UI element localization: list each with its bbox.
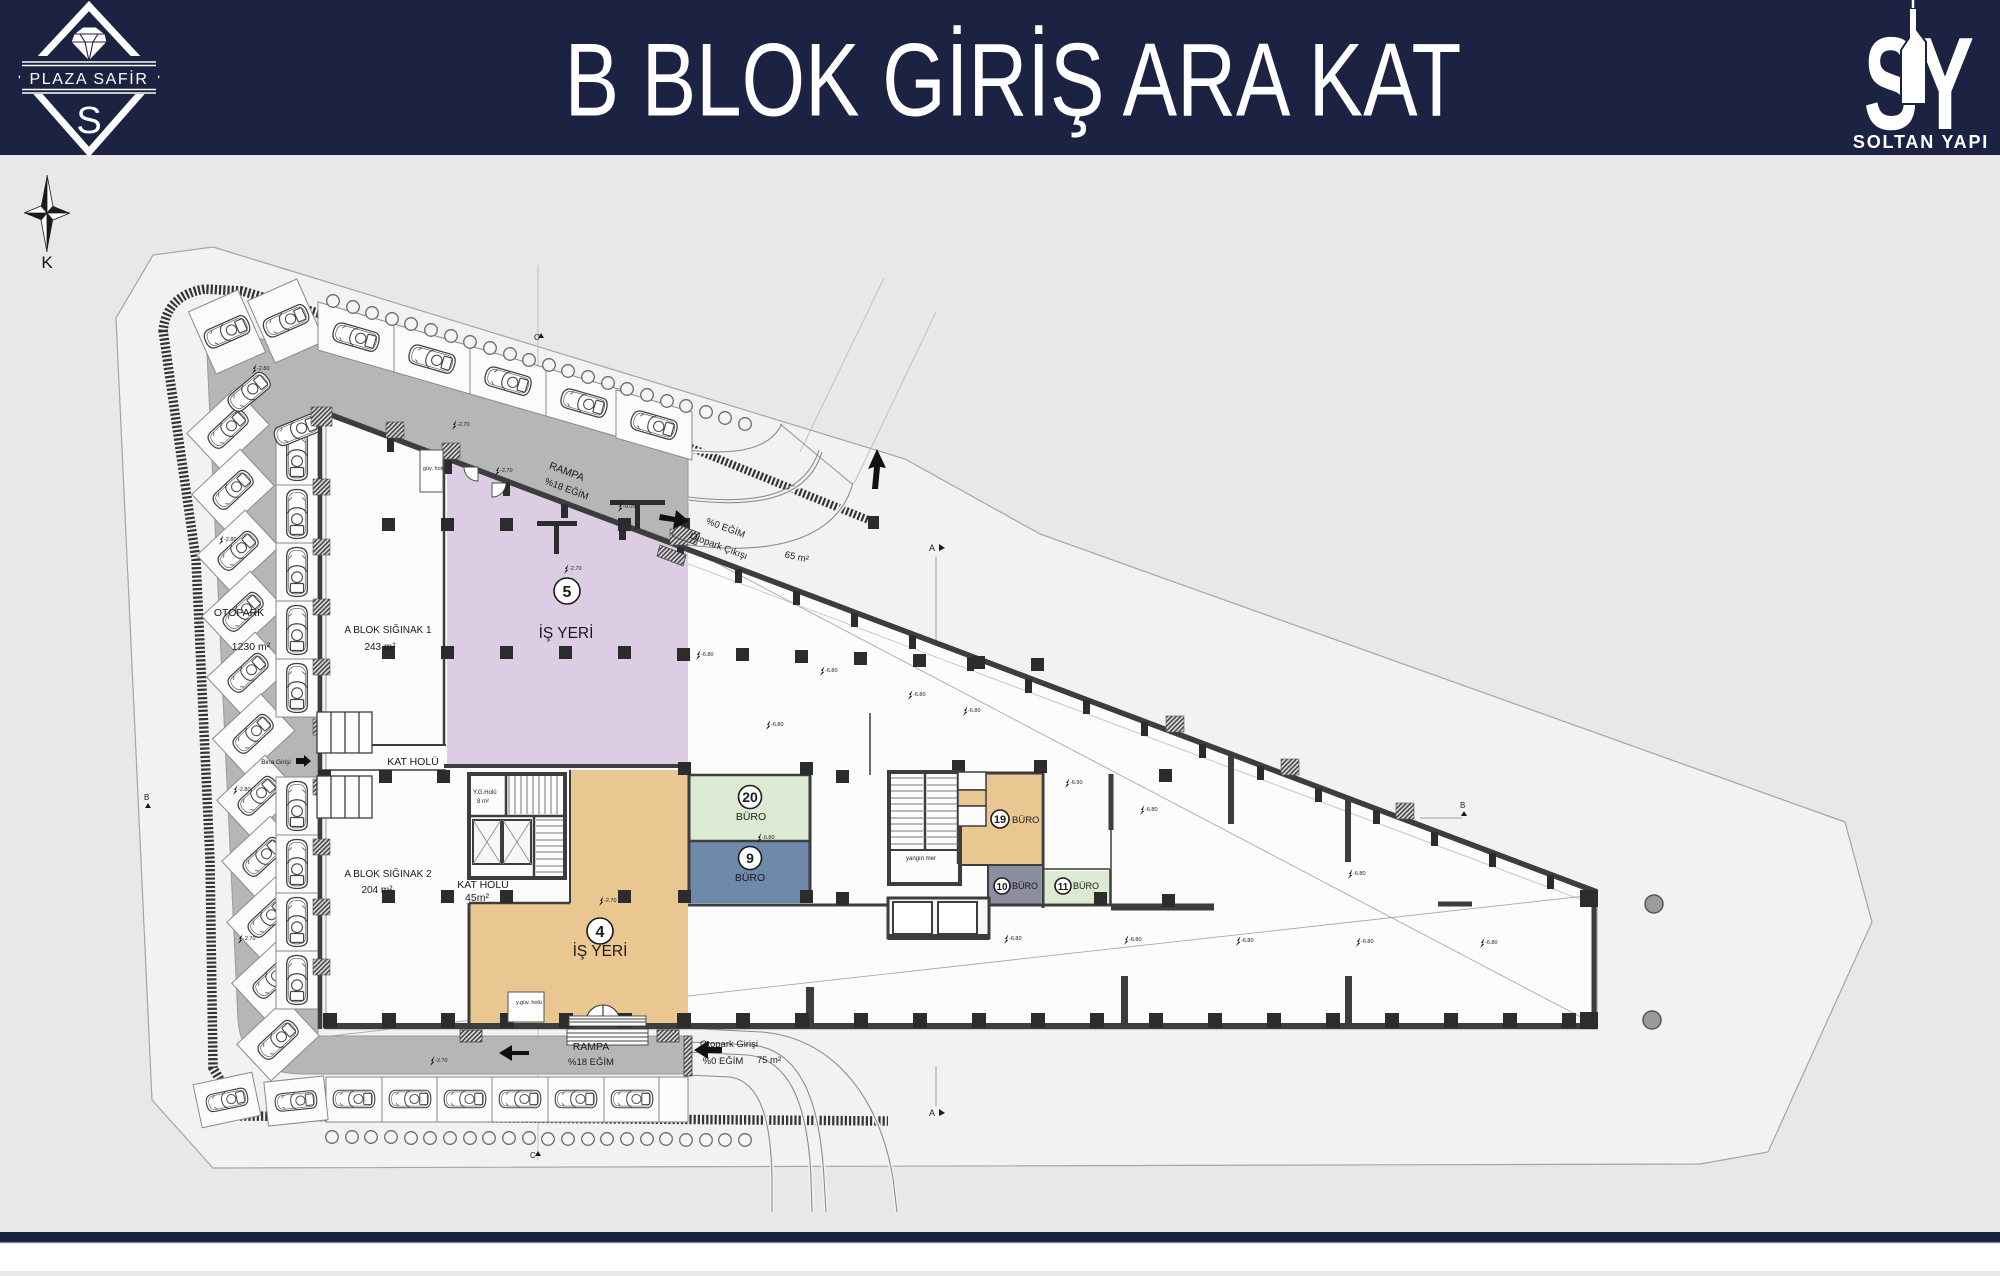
svg-text:BÜRO: BÜRO xyxy=(1012,815,1039,826)
svg-text:-6.80: -6.80 xyxy=(1145,807,1158,813)
svg-text:9: 9 xyxy=(746,850,754,866)
svg-text:75 m²: 75 m² xyxy=(757,1055,781,1066)
svg-text:4: 4 xyxy=(596,924,605,941)
svg-text:-2.70: -2.70 xyxy=(604,898,617,904)
svg-text:C: C xyxy=(530,1151,536,1160)
svg-text:-6.80: -6.80 xyxy=(1361,939,1374,945)
svg-text:A BLOK SIĞINAK 2: A BLOK SIĞINAK 2 xyxy=(344,867,432,880)
svg-text:%0 EĞİM: %0 EĞİM xyxy=(703,1056,744,1067)
svg-text:-6.80: -6.80 xyxy=(762,835,775,841)
svg-text:Bina Girişi: Bina Girişi xyxy=(261,759,291,766)
svg-text:A: A xyxy=(929,543,935,553)
svg-text:-6.80: -6.80 xyxy=(1241,938,1254,944)
svg-text:-6.80: -6.80 xyxy=(968,708,981,714)
svg-text:A: A xyxy=(929,1108,935,1118)
svg-text:-2.70: -2.70 xyxy=(569,566,582,572)
svg-text:BÜRO: BÜRO xyxy=(735,872,765,884)
svg-text:45m²: 45m² xyxy=(465,892,489,904)
svg-text:-0.05: -0.05 xyxy=(623,504,636,510)
svg-text:8 m²: 8 m² xyxy=(477,799,489,805)
svg-text:-6.80: -6.80 xyxy=(1485,940,1498,946)
svg-text:İŞ YERİ: İŞ YERİ xyxy=(539,624,594,642)
svg-text:y.güv. holü: y.güv. holü xyxy=(516,1000,542,1006)
svg-text:5: 5 xyxy=(563,584,572,601)
svg-text:-2.70: -2.70 xyxy=(457,422,470,428)
svg-text:OTOPARK: OTOPARK xyxy=(214,607,264,619)
svg-text:K: K xyxy=(41,253,53,272)
svg-text:20: 20 xyxy=(742,789,758,805)
svg-text:Y.G.Holü: Y.G.Holü xyxy=(473,790,497,796)
svg-text:KAT HOLÜ: KAT HOLÜ xyxy=(387,756,439,768)
svg-text:-2.80: -2.80 xyxy=(257,366,270,372)
svg-text:BÜRO: BÜRO xyxy=(1073,881,1099,891)
svg-text:yangın mer: yangın mer xyxy=(906,856,936,862)
svg-text:Otopark Girişi: Otopark Girişi xyxy=(700,1039,758,1050)
svg-text:-2.80: -2.80 xyxy=(238,787,251,793)
svg-text:-6.80: -6.80 xyxy=(701,652,714,658)
svg-text:204 m²: 204 m² xyxy=(361,885,393,896)
svg-text:BÜRO: BÜRO xyxy=(736,811,766,823)
svg-text:B BLOK GİRİŞ ARA KAT: B BLOK GİRİŞ ARA KAT xyxy=(565,21,1462,138)
svg-text:-6.80: -6.80 xyxy=(1129,937,1142,943)
svg-text:-6.80: -6.80 xyxy=(913,692,926,698)
svg-text:-6.80: -6.80 xyxy=(771,722,784,728)
svg-text:PLAZA SAFİR: PLAZA SAFİR xyxy=(30,69,149,88)
svg-text:BÜRO: BÜRO xyxy=(1012,881,1038,891)
svg-text:güv. holü: güv. holü xyxy=(423,466,445,472)
svg-text:KAT HOLÜ: KAT HOLÜ xyxy=(457,879,509,891)
svg-text:-6.80: -6.80 xyxy=(1353,871,1366,877)
svg-text:-6.80: -6.80 xyxy=(825,668,838,674)
svg-text:İŞ YERİ: İŞ YERİ xyxy=(573,942,628,960)
svg-text:11: 11 xyxy=(1058,882,1069,893)
svg-text:-2.80: -2.80 xyxy=(224,537,237,543)
svg-text:%18 EĞİM: %18 EĞİM xyxy=(568,1057,614,1068)
svg-text:-2.70: -2.70 xyxy=(500,468,513,474)
svg-text:S: S xyxy=(76,100,101,142)
svg-text:-6.80: -6.80 xyxy=(1009,936,1022,942)
svg-text:SOLTAN YAPI: SOLTAN YAPI xyxy=(1853,132,1989,152)
svg-text:1230 m²: 1230 m² xyxy=(232,641,271,653)
svg-text:243 m²: 243 m² xyxy=(364,642,396,653)
svg-text:B: B xyxy=(1460,801,1465,810)
svg-text:19: 19 xyxy=(994,814,1006,826)
svg-text:10: 10 xyxy=(996,882,1008,893)
svg-text:-2.70: -2.70 xyxy=(435,1058,448,1064)
svg-text:-2.70: -2.70 xyxy=(243,936,256,942)
svg-text:B: B xyxy=(144,793,149,802)
svg-text:RAMPA: RAMPA xyxy=(573,1041,610,1053)
svg-text:-6.90: -6.90 xyxy=(1070,780,1083,786)
svg-text:A BLOK SIĞINAK 1: A BLOK SIĞINAK 1 xyxy=(344,623,432,636)
